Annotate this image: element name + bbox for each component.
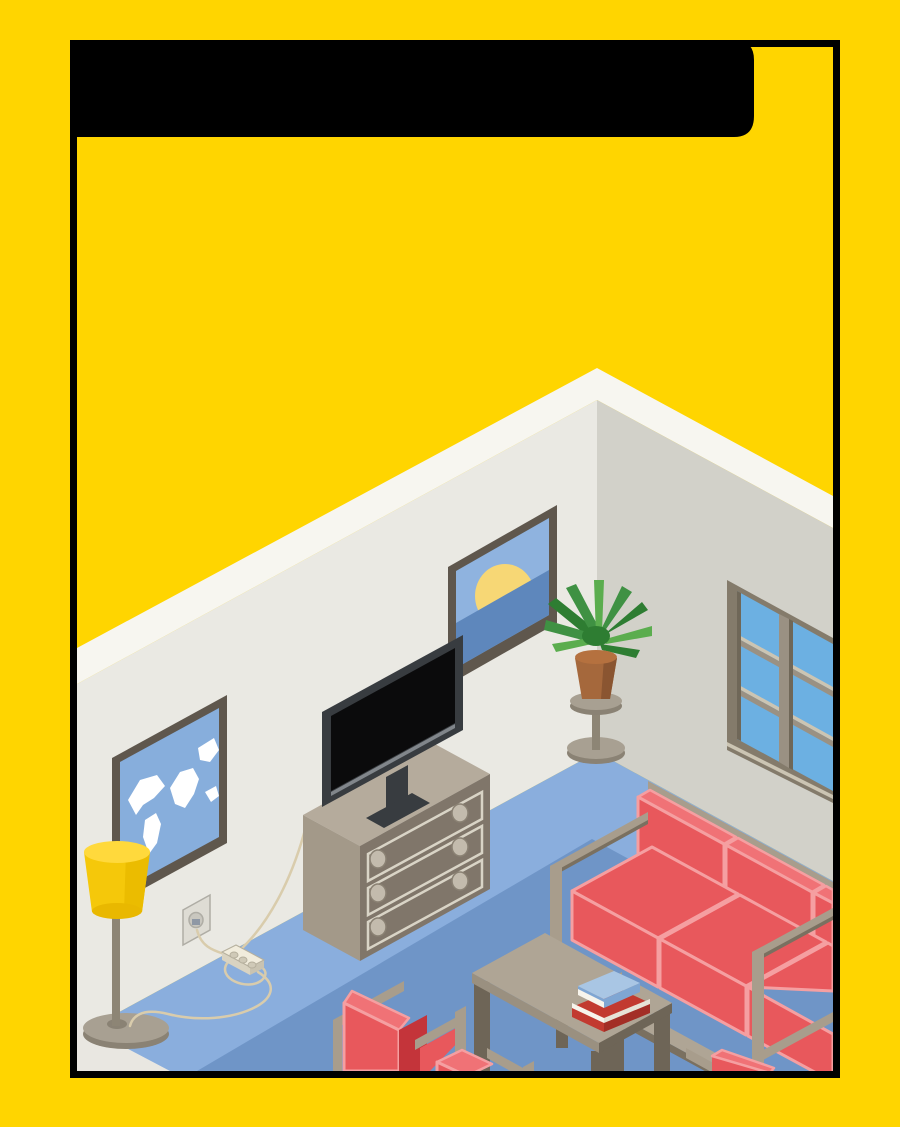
window-mullion-shade — [789, 619, 793, 770]
lamp-shade-rim — [92, 903, 142, 919]
drawer-knob — [452, 838, 468, 856]
window-mullion-vertical — [779, 614, 789, 768]
strip-socket — [239, 957, 247, 963]
window-jamb — [737, 591, 741, 741]
plant-center — [582, 626, 610, 646]
poster — [0, 0, 900, 1127]
drawer-knob — [370, 850, 386, 868]
strip-socket — [248, 962, 256, 968]
lamp-shade-top — [84, 841, 150, 863]
drawer-knob — [452, 872, 468, 890]
drawer-knob — [370, 884, 386, 902]
lamp-base — [83, 1013, 169, 1043]
drawer-knob — [370, 918, 386, 936]
outlet-plug — [192, 919, 200, 925]
drawer-knob — [452, 804, 468, 822]
lamp-pole — [112, 906, 120, 1026]
chair-back-rail-post — [333, 1015, 342, 1071]
strip-socket — [230, 952, 238, 958]
title-banner — [70, 40, 754, 137]
living-room-illustration — [0, 0, 900, 1127]
plant-pot-rim — [575, 650, 617, 664]
